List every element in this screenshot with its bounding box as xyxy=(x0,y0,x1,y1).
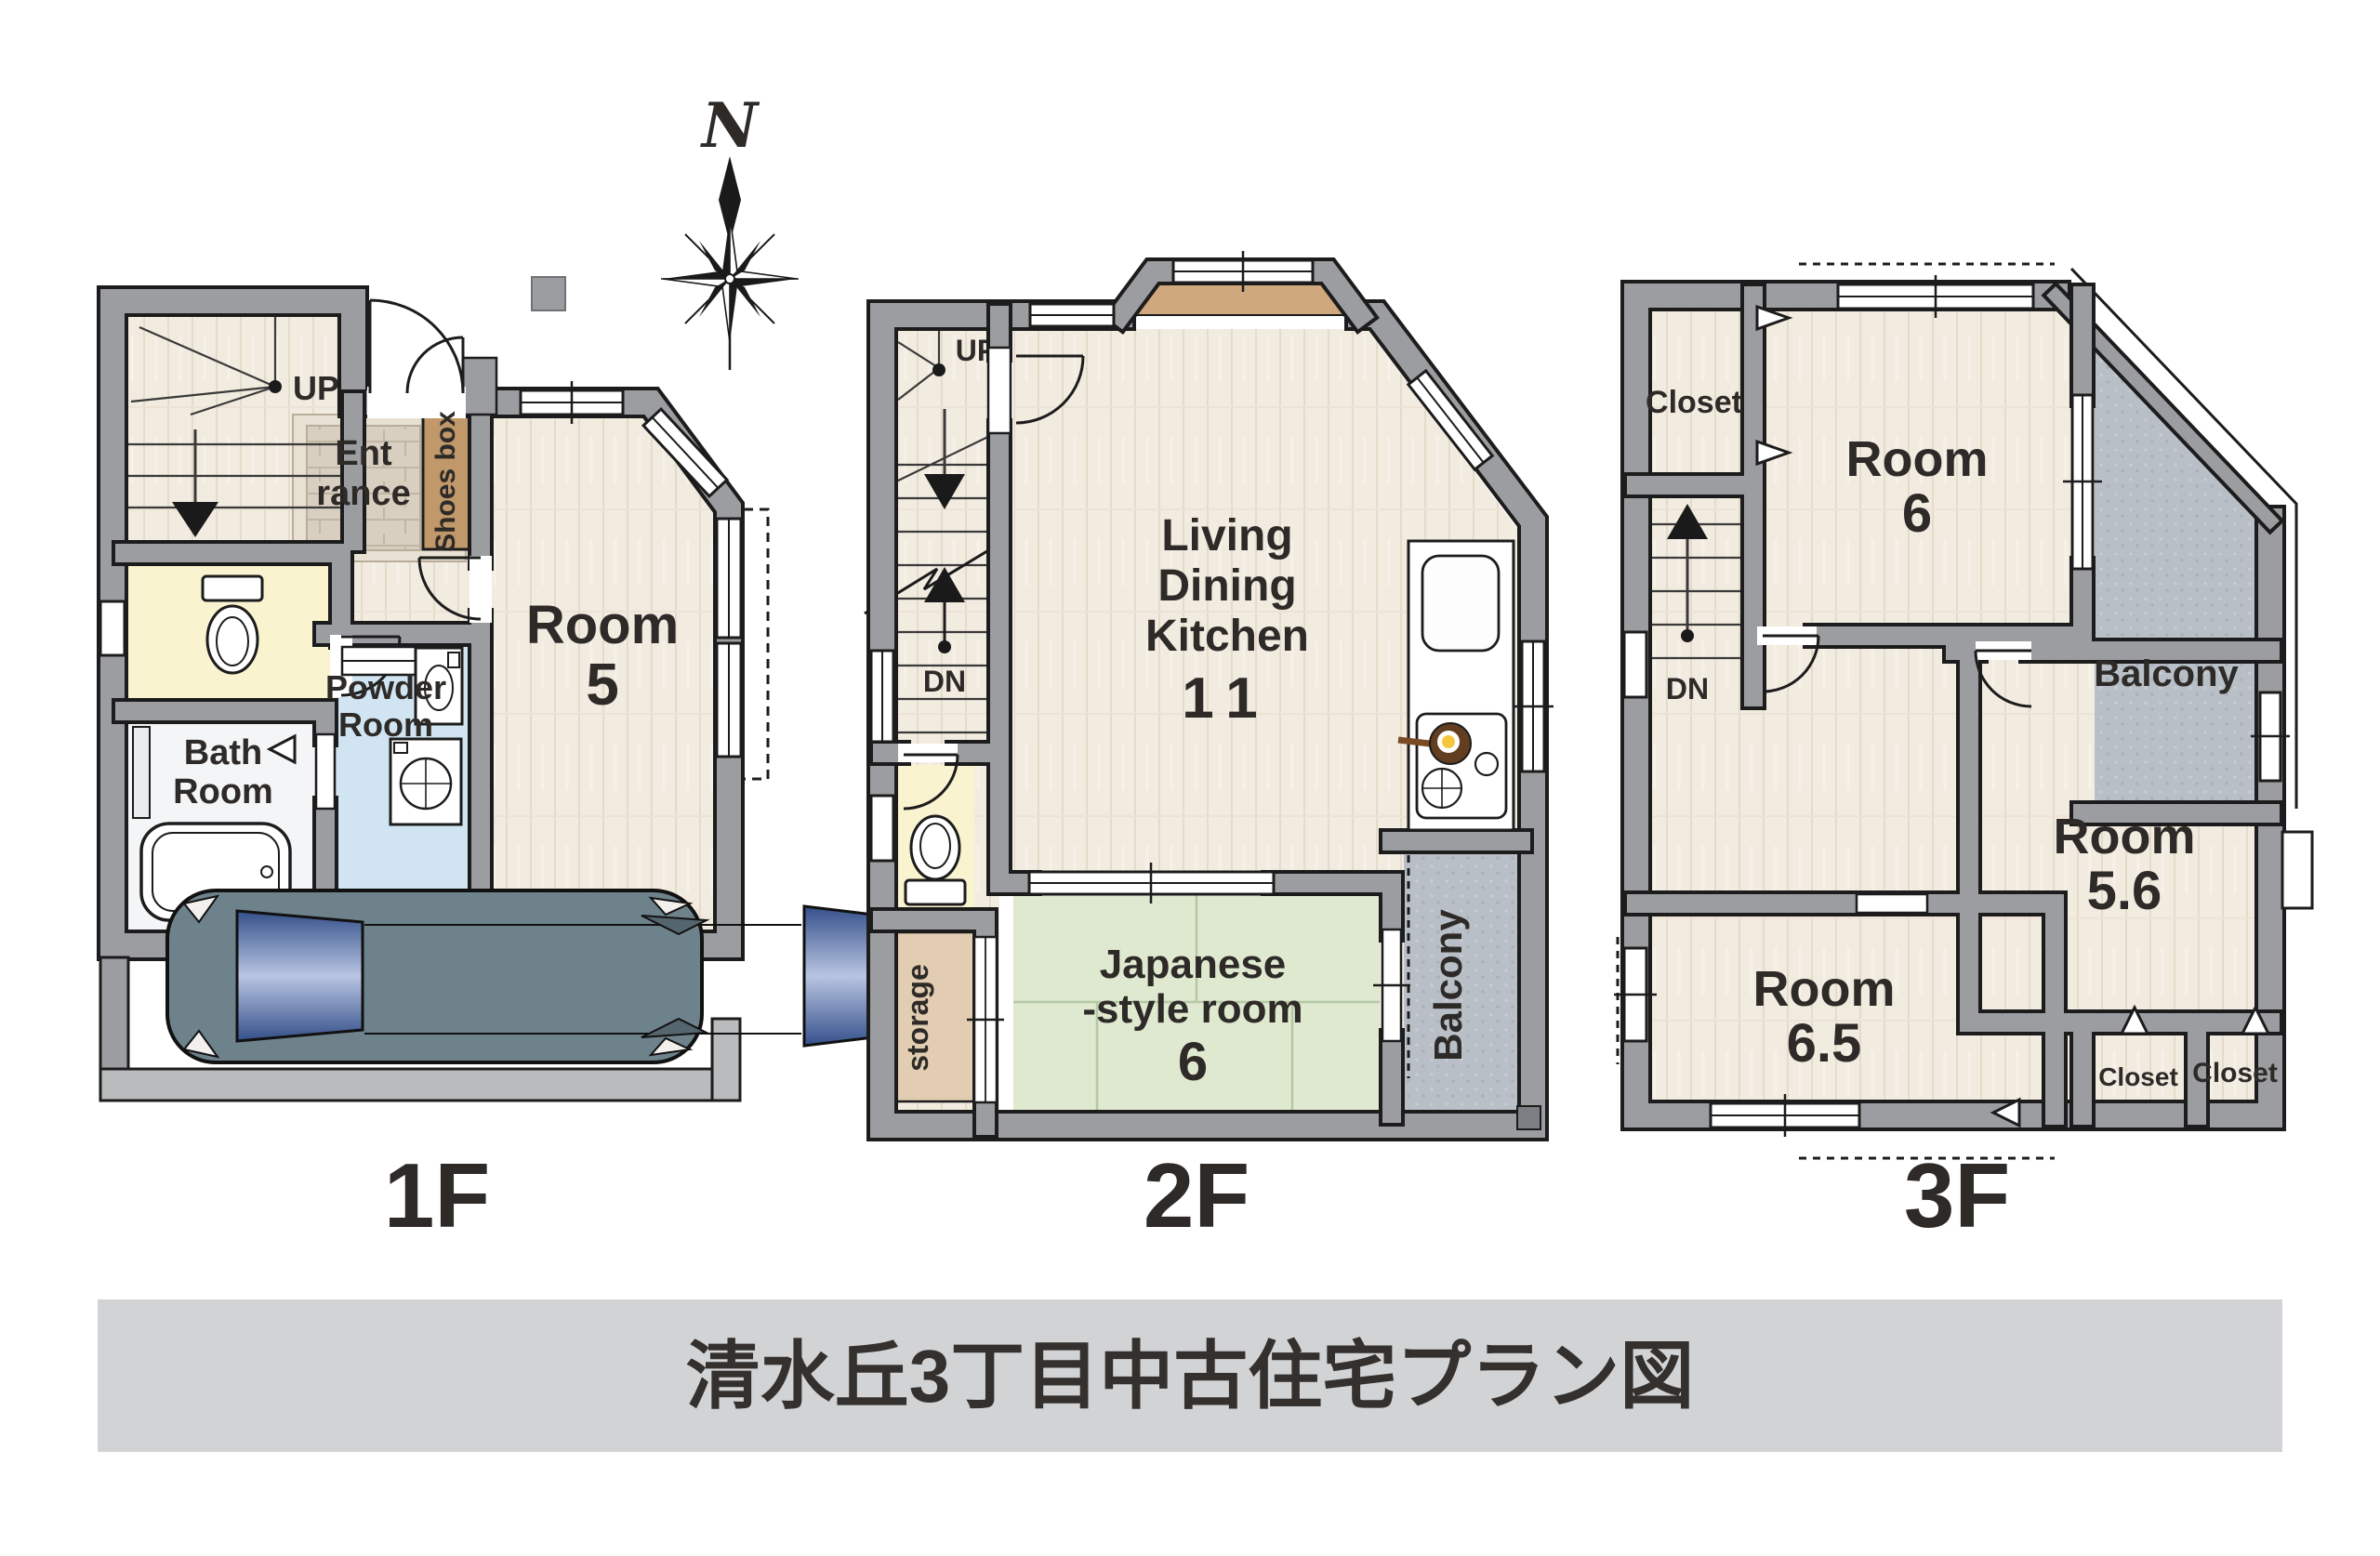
ldk-size-label: 11 xyxy=(1182,666,1273,731)
stairs-down-label-2f: DN xyxy=(923,665,966,698)
ldk-label-line1: Living xyxy=(1161,511,1292,560)
title-bar: 清水丘3丁目中古住宅プラン図 xyxy=(98,1299,2282,1452)
washing-machine-icon xyxy=(390,739,461,824)
room56-label-line2: 5.6 xyxy=(2087,861,2162,921)
bay-window-3f xyxy=(2282,832,2312,908)
bay-window-dashed-1f xyxy=(744,509,768,779)
room5-label-line1: Room xyxy=(526,595,679,655)
powder-label-line2: Room xyxy=(338,705,433,744)
floor-plan-canvas: N UP xyxy=(0,0,2380,1556)
toilet-icon-1f xyxy=(203,576,262,673)
closet-s-left-label: Closet xyxy=(2098,1062,2178,1091)
entrance-label-line2: rance xyxy=(316,474,410,513)
floor-plan-page: N UP xyxy=(0,0,2380,1556)
compass-north-label: N xyxy=(700,89,760,162)
floor-plan-2f: UP DN xyxy=(865,251,1554,1246)
floor-plan-1f: UP xyxy=(100,300,934,1246)
porch-post xyxy=(463,358,496,415)
ldk-label-line3: Kitchen xyxy=(1145,612,1309,661)
stairs-up-label-1f: UP xyxy=(293,369,339,407)
powder-label-line1: Powder xyxy=(325,668,446,706)
bath-label-line2: Room xyxy=(173,772,273,811)
balcony-corner-post xyxy=(1517,1106,1540,1129)
room56-label-line1: Room xyxy=(2054,809,2196,864)
room6-label-line1: Room xyxy=(1846,431,1989,487)
compass-star-icon xyxy=(661,216,799,342)
japanese-room-label-line2: -style room xyxy=(1082,986,1302,1032)
kitchen-sink-icon xyxy=(1422,556,1499,651)
legend-gray-square xyxy=(532,277,565,310)
closet-s-right-label: Closet xyxy=(2192,1058,2278,1088)
car-icon xyxy=(167,868,934,1084)
toilet-icon-2f xyxy=(906,816,965,904)
shoes-box-label: Shoes box xyxy=(430,411,461,552)
balcony-label-2f: Balcony xyxy=(1426,909,1470,1062)
closet-nw-label: Closet xyxy=(1646,385,1742,420)
room65-label-line1: Room xyxy=(1753,961,1896,1017)
storage-label: storage xyxy=(901,964,934,1072)
room6-label-line2: 6 xyxy=(1902,483,1932,544)
room65-label-line2: 6.5 xyxy=(1787,1013,1862,1074)
frying-pan-handle xyxy=(1398,740,1430,744)
floor-label-1f: 1F xyxy=(384,1144,490,1246)
kitchen-counter xyxy=(1398,541,1514,830)
page-title: 清水丘3丁目中古住宅プラン図 xyxy=(686,1335,1695,1418)
balcony-label-3f: Balcony xyxy=(2094,653,2239,694)
compass: N xyxy=(661,89,799,370)
stairs-down-label-3f: DN xyxy=(1666,672,1709,705)
room5-label-line2: 5 xyxy=(586,651,619,718)
japanese-room-size-label: 6 xyxy=(1178,1032,1208,1092)
floor-label-2f: 2F xyxy=(1144,1144,1249,1246)
floor-label-3f: 3F xyxy=(1904,1144,2010,1246)
bath-label-line1: Bath xyxy=(184,733,262,772)
floor-plan-3f: DN Closet Room xyxy=(1614,264,2312,1246)
ldk-label-line2: Dining xyxy=(1157,561,1296,611)
japanese-room-label-line1: Japanese xyxy=(1100,942,1287,987)
entrance-label-line1: Ent xyxy=(335,434,392,473)
